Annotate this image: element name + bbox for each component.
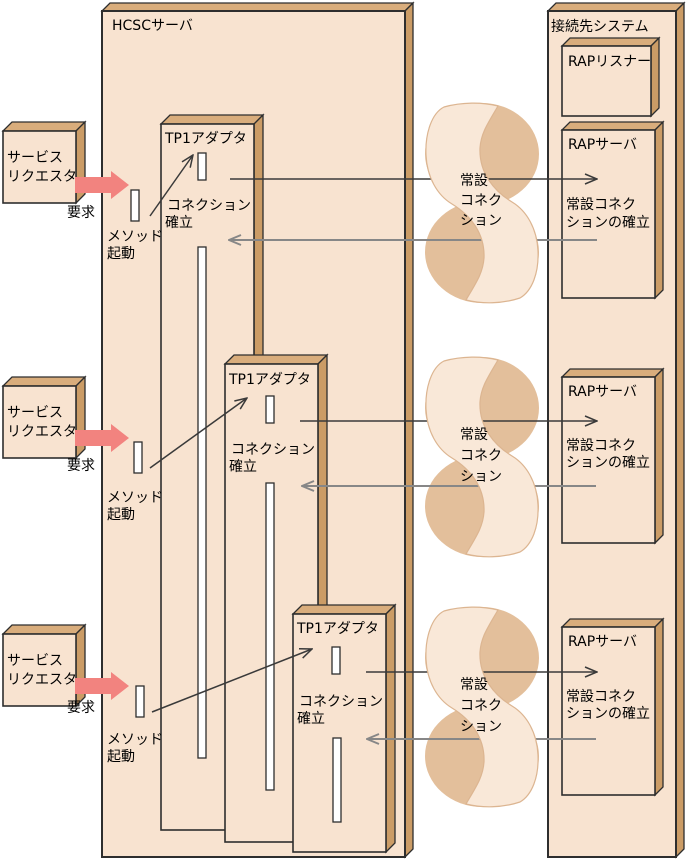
rap-server-2: RAPサーバ 常設コネク ションの確立 xyxy=(562,369,663,543)
rap-server-front-face xyxy=(562,130,655,298)
channel-label-line3-1: ション xyxy=(460,213,502,229)
tp1-adapter-3: TP1アダプタ コネクション 確立 xyxy=(293,605,395,852)
adapter-port-slot-2 xyxy=(266,396,274,423)
rap-server-label-1: RAPサーバ xyxy=(568,137,637,153)
adapter-top-face xyxy=(161,115,263,124)
establish-label-line2-3: ションの確立 xyxy=(566,706,650,722)
destination-system-top-face xyxy=(548,3,684,11)
requester-label-line1: サービス xyxy=(7,653,63,669)
establish-label-line1-3: 常設コネク xyxy=(566,689,636,705)
service-requester-3: サービス リクエスタ xyxy=(3,625,85,706)
rap-listener-box: RAPリスナー xyxy=(562,38,659,116)
rap-server-1: RAPサーバ 常設コネク ションの確立 xyxy=(562,122,663,298)
channel-label-line2-1: コネク xyxy=(460,193,502,209)
diagram-canvas: HCSCサーバ 接続先システム RAPリスナー サービス リクエスタ 要求 TP… xyxy=(0,0,687,863)
channel-label-line3-2: ション xyxy=(460,469,502,485)
adapter-top-face xyxy=(225,355,327,364)
channel-label-line1-2: 常設 xyxy=(460,427,488,443)
adapter-port-slot-1 xyxy=(198,153,206,180)
channel-label-line2-3: コネク xyxy=(460,698,502,714)
rap-server-top-face xyxy=(562,369,663,377)
method-slot-3 xyxy=(136,686,144,717)
connection-label-line2-2: 確立 xyxy=(229,459,257,475)
connection-label-line1-2: コネクション xyxy=(231,442,315,458)
channel-label-line1-3: 常設 xyxy=(460,677,488,693)
requester-top-face xyxy=(3,122,85,131)
establish-label-line2-1: ションの確立 xyxy=(566,215,650,231)
channel-label-line3-3: ション xyxy=(460,719,502,735)
request-label-1: 要求 xyxy=(67,205,95,221)
adapter-label-1: TP1アダプタ xyxy=(164,131,247,147)
rap-listener-side-face xyxy=(651,38,659,116)
requester-front-face xyxy=(3,131,76,203)
request-label-2: 要求 xyxy=(67,458,95,474)
rap-listener-top-face xyxy=(562,38,659,46)
establish-label-line2-2: ションの確立 xyxy=(566,455,650,471)
adapter-port-slot-3 xyxy=(332,647,340,674)
method-label-line2-2: 起動 xyxy=(107,507,135,523)
adapter-long-slot-3 xyxy=(333,738,341,822)
method-slot-1 xyxy=(131,190,139,221)
requester-front-face xyxy=(3,634,76,706)
connection-label-line1-1: コネクション xyxy=(167,198,251,214)
establish-label-line1-1: 常設コネク xyxy=(566,197,636,213)
request-label-3: 要求 xyxy=(67,700,95,716)
establish-label-line1-2: 常設コネク xyxy=(566,438,636,454)
connection-label-line1-3: コネクション xyxy=(299,694,383,710)
hcsc-server-top-face xyxy=(102,3,413,11)
service-requester-1: サービス リクエスタ xyxy=(3,122,85,203)
adapter-label-3: TP1アダプタ xyxy=(296,621,379,637)
requester-label-line2: リクエスタ xyxy=(7,169,77,185)
connection-label-line2-1: 確立 xyxy=(165,215,193,231)
method-slot-2 xyxy=(134,442,142,473)
rap-listener-label: RAPリスナー xyxy=(568,54,651,70)
adapter-long-slot-1 xyxy=(198,247,206,758)
rap-server-3: RAPサーバ 常設コネク ションの確立 xyxy=(562,619,663,795)
hcsc-server-side-face xyxy=(405,3,413,857)
requester-label-line2: リクエスタ xyxy=(7,424,77,440)
rap-server-side-face xyxy=(655,369,663,543)
requester-label-line1: サービス xyxy=(7,150,63,166)
rap-server-label-3: RAPサーバ xyxy=(568,634,637,650)
rap-server-top-face xyxy=(562,619,663,627)
channel-label-line2-2: コネク xyxy=(460,448,502,464)
requester-label-line1: サービス xyxy=(7,405,63,421)
adapter-long-slot-2 xyxy=(266,483,274,790)
method-label-line2-3: 起動 xyxy=(107,749,135,765)
requester-top-face xyxy=(3,377,85,386)
method-label-line1-3: メソッド xyxy=(107,732,163,748)
method-label-line1-2: メソッド xyxy=(107,490,163,506)
adapter-top-face xyxy=(293,605,395,614)
hcsc-server-title: HCSCサーバ xyxy=(112,18,193,34)
destination-system-side-face xyxy=(676,3,684,857)
requester-label-line2: リクエスタ xyxy=(7,672,77,688)
architecture-diagram: HCSCサーバ 接続先システム RAPリスナー サービス リクエスタ 要求 TP… xyxy=(0,0,687,863)
rap-server-top-face xyxy=(562,122,663,130)
adapter-label-2: TP1アダプタ xyxy=(228,372,311,388)
rap-server-side-face xyxy=(655,122,663,298)
connection-label-line2-3: 確立 xyxy=(297,711,325,727)
service-requester-2: サービス リクエスタ xyxy=(3,377,85,458)
method-label-line2-1: 起動 xyxy=(107,246,135,262)
destination-system-title: 接続先システム xyxy=(551,18,649,35)
rap-server-label-2: RAPサーバ xyxy=(568,384,637,400)
method-label-line1-1: メソッド xyxy=(107,229,163,245)
rap-server-side-face xyxy=(655,619,663,795)
requester-top-face xyxy=(3,625,85,634)
channel-label-line1-1: 常設 xyxy=(460,173,488,189)
adapter-side-face xyxy=(386,605,395,852)
requester-front-face xyxy=(3,386,76,458)
